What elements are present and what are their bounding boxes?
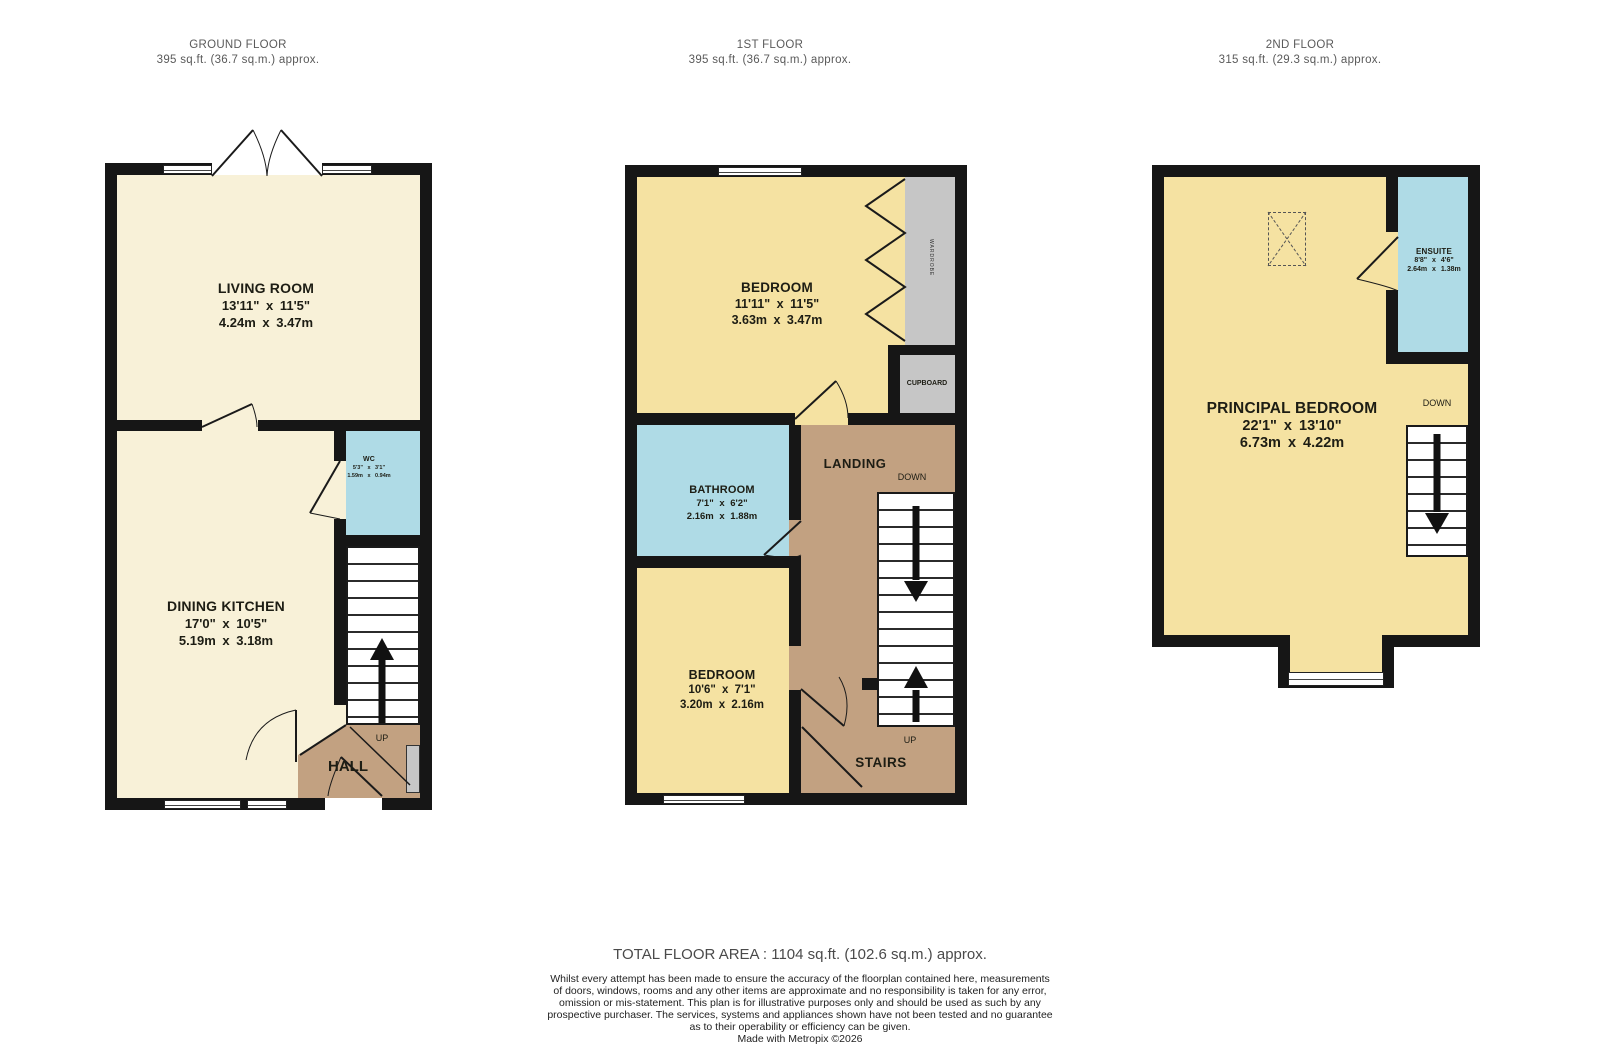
room-name: PRINCIPAL BEDROOM <box>1162 400 1422 418</box>
room-dims-imperial: 8'8" x 4'6" <box>1384 256 1484 265</box>
room-dims-metric: 3.20m x 2.16m <box>642 698 802 713</box>
ensuite-label: ENSUITE 8'8" x 4'6" 2.64m x 1.38m <box>1384 247 1484 274</box>
bathroom-label: BATHROOM 7'1" x 6'2" 2.16m x 1.88m <box>642 484 802 523</box>
down-label: DOWN <box>892 472 932 482</box>
living-room-label: LIVING ROOM 13'11" x 11'5" 4.24m x 3.47m <box>156 280 376 331</box>
up-label: UP <box>362 733 402 743</box>
room-name: LIVING ROOM <box>156 280 376 297</box>
disclaimer-line: prospective purchaser. The services, sys… <box>300 1009 1300 1021</box>
room-name: BATHROOM <box>642 484 802 497</box>
room-dims-imperial: 17'0" x 10'5" <box>116 615 336 632</box>
bedroom1-label: BEDROOM 11'11" x 11'5" 3.63m x 3.47m <box>667 280 887 328</box>
room-dims-imperial: 13'11" x 11'5" <box>156 297 376 314</box>
room-dims-metric: 3.63m x 3.47m <box>667 312 887 328</box>
room-dims-imperial: 11'11" x 11'5" <box>667 296 887 312</box>
room-dims-imperial: 10'6" x 7'1" <box>642 683 802 698</box>
wc-label: WC 5'3" x 3'1" 1.59m x 0.94m <box>309 456 429 480</box>
disclaimer-line: omission or mis-statement. This plan is … <box>300 997 1300 1009</box>
room-name: DINING KITCHEN <box>116 598 336 615</box>
hall-label: HALL <box>308 758 388 775</box>
landing-label: LANDING <box>795 456 915 471</box>
wardrobe-label: WARDROBE <box>922 230 934 286</box>
disclaimer-line: of doors, windows, rooms and any other i… <box>300 985 1300 997</box>
metropix-credit: Made with Metropix ©2026 <box>300 1033 1300 1045</box>
room-dims-metric: 2.64m x 1.38m <box>1384 265 1484 274</box>
room-dims-imperial: 22'1" x 13'10" <box>1162 418 1422 436</box>
cupboard-label: CUPBOARD <box>897 380 957 387</box>
room-name: BEDROOM <box>667 280 887 296</box>
dining-kitchen-label: DINING KITCHEN 17'0" x 10'5" 5.19m x 3.1… <box>116 598 336 649</box>
room-name: ENSUITE <box>1384 247 1484 256</box>
floorplan-page: GROUND FLOOR 395 sq.ft. (36.7 sq.m.) app… <box>0 0 1600 1051</box>
room-labels: LIVING ROOM 13'11" x 11'5" 4.24m x 3.47m… <box>0 0 1600 1051</box>
principal-bedroom-label: PRINCIPAL BEDROOM 22'1" x 13'10" 6.73m x… <box>1162 400 1422 453</box>
footer: TOTAL FLOOR AREA : 1104 sq.ft. (102.6 sq… <box>300 946 1300 1045</box>
room-dims-metric: 4.24m x 3.47m <box>156 314 376 331</box>
up-label: UP <box>890 735 930 745</box>
room-dims-metric: 6.73m x 4.22m <box>1162 435 1422 453</box>
disclaimer-line: as to their operability or efficiency ca… <box>300 1021 1300 1033</box>
room-dims-metric: 5.19m x 3.18m <box>116 632 336 649</box>
down-label: DOWN <box>1412 398 1462 408</box>
room-dims-imperial: 5'3" x 3'1" <box>309 464 429 472</box>
room-dims-metric: 1.59m x 0.94m <box>309 472 429 480</box>
stairs-label: STAIRS <box>821 755 941 770</box>
room-dims-imperial: 7'1" x 6'2" <box>642 497 802 510</box>
bedroom2-label: BEDROOM 10'6" x 7'1" 3.20m x 2.16m <box>642 668 802 713</box>
total-floor-area: TOTAL FLOOR AREA : 1104 sq.ft. (102.6 sq… <box>300 946 1300 963</box>
room-name: BEDROOM <box>642 668 802 683</box>
disclaimer-line: Whilst every attempt has been made to en… <box>300 973 1300 985</box>
room-dims-metric: 2.16m x 1.88m <box>642 510 802 523</box>
room-name: WC <box>309 456 429 464</box>
